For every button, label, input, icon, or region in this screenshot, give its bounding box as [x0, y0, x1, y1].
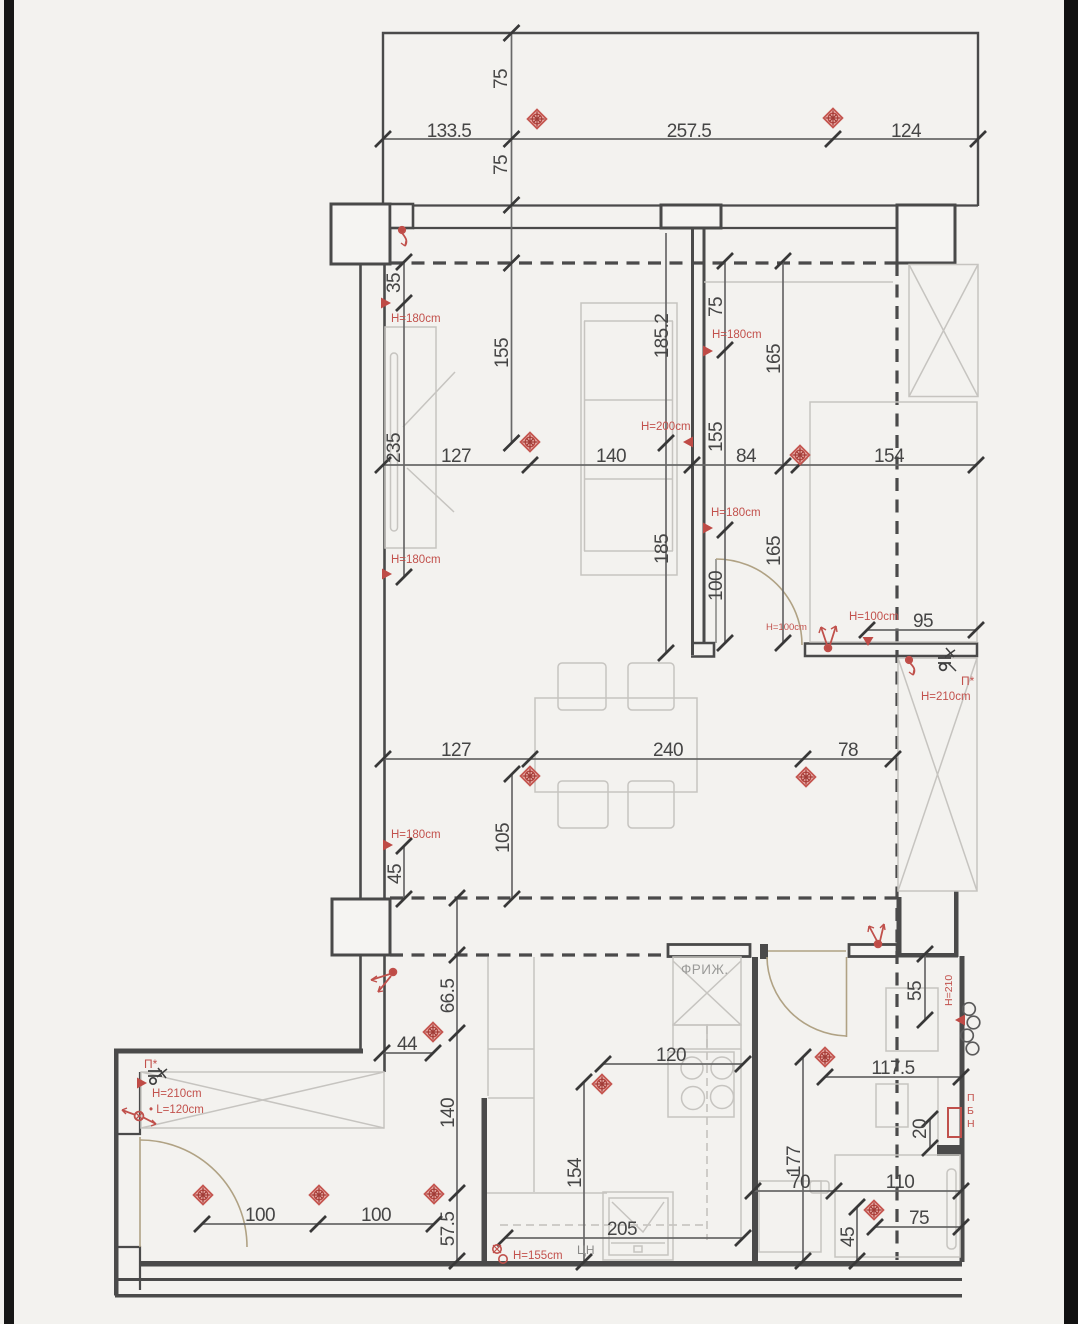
- svg-text:75: 75: [491, 69, 512, 89]
- svg-text:140: 140: [438, 1098, 459, 1128]
- svg-text:120: 120: [656, 1045, 686, 1066]
- svg-text:205: 205: [607, 1219, 637, 1240]
- svg-text:H=155cm: H=155cm: [513, 1250, 563, 1262]
- svg-text:57.5: 57.5: [438, 1212, 459, 1247]
- svg-text:133.5: 133.5: [427, 121, 472, 142]
- svg-text:100: 100: [361, 1205, 391, 1226]
- svg-text:П: П: [967, 1092, 975, 1104]
- svg-text:75: 75: [706, 297, 727, 317]
- svg-text:44: 44: [397, 1034, 418, 1055]
- svg-text:20: 20: [910, 1119, 931, 1139]
- svg-text:45: 45: [838, 1227, 859, 1247]
- svg-text:84: 84: [736, 446, 757, 467]
- svg-text:55: 55: [905, 981, 926, 1001]
- svg-text:78: 78: [838, 740, 858, 761]
- svg-text:Б: Б: [967, 1105, 974, 1117]
- svg-text:70: 70: [790, 1172, 810, 1193]
- svg-text:185: 185: [652, 534, 673, 564]
- svg-text:H=100cm: H=100cm: [766, 622, 807, 633]
- svg-text:H=180cm: H=180cm: [391, 829, 441, 841]
- svg-text:75: 75: [909, 1208, 929, 1229]
- svg-text:257.5: 257.5: [667, 121, 712, 142]
- svg-text:45: 45: [385, 864, 406, 884]
- svg-text:127: 127: [441, 740, 471, 761]
- svg-text:117.5: 117.5: [871, 1058, 914, 1079]
- svg-text:ЦН: ЦН: [577, 1243, 595, 1257]
- svg-text:H=210: H=210: [943, 975, 955, 1006]
- svg-text:100: 100: [706, 571, 727, 601]
- svg-text:H=100cm: H=100cm: [849, 611, 899, 623]
- svg-text:165: 165: [764, 536, 785, 566]
- svg-text:95: 95: [913, 611, 933, 632]
- svg-text:H=210cm: H=210cm: [152, 1088, 202, 1100]
- svg-text:35: 35: [384, 273, 405, 293]
- svg-text:66.5: 66.5: [438, 979, 459, 1014]
- svg-text:124: 124: [891, 121, 922, 142]
- svg-text:H=200cm: H=200cm: [641, 421, 691, 433]
- svg-text:155: 155: [492, 338, 513, 368]
- svg-text:155: 155: [706, 422, 727, 452]
- svg-text:H=210cm: H=210cm: [921, 691, 971, 703]
- svg-text:100: 100: [245, 1205, 275, 1226]
- svg-text:235: 235: [384, 433, 405, 463]
- svg-text:110: 110: [886, 1172, 915, 1193]
- svg-text:154: 154: [565, 1157, 586, 1188]
- svg-text:П*: П*: [961, 674, 975, 688]
- svg-text:• L=120cm: • L=120cm: [149, 1104, 204, 1116]
- svg-text:105: 105: [493, 823, 514, 853]
- svg-text:75: 75: [491, 155, 512, 175]
- svg-text:П*: П*: [144, 1057, 158, 1071]
- svg-text:127: 127: [441, 446, 471, 467]
- svg-text:185.2: 185.2: [652, 314, 673, 359]
- svg-text:Н: Н: [967, 1118, 975, 1130]
- svg-text:154: 154: [874, 446, 905, 467]
- svg-text:H=180cm: H=180cm: [711, 507, 761, 519]
- svg-text:165: 165: [764, 344, 785, 374]
- svg-text:140: 140: [596, 446, 626, 467]
- svg-text:H=180cm: H=180cm: [391, 313, 441, 325]
- svg-text:ФРИЖ.: ФРИЖ.: [681, 962, 729, 977]
- svg-text:H=180cm: H=180cm: [712, 329, 762, 341]
- svg-text:H=180cm: H=180cm: [391, 554, 441, 566]
- svg-text:240: 240: [653, 740, 683, 761]
